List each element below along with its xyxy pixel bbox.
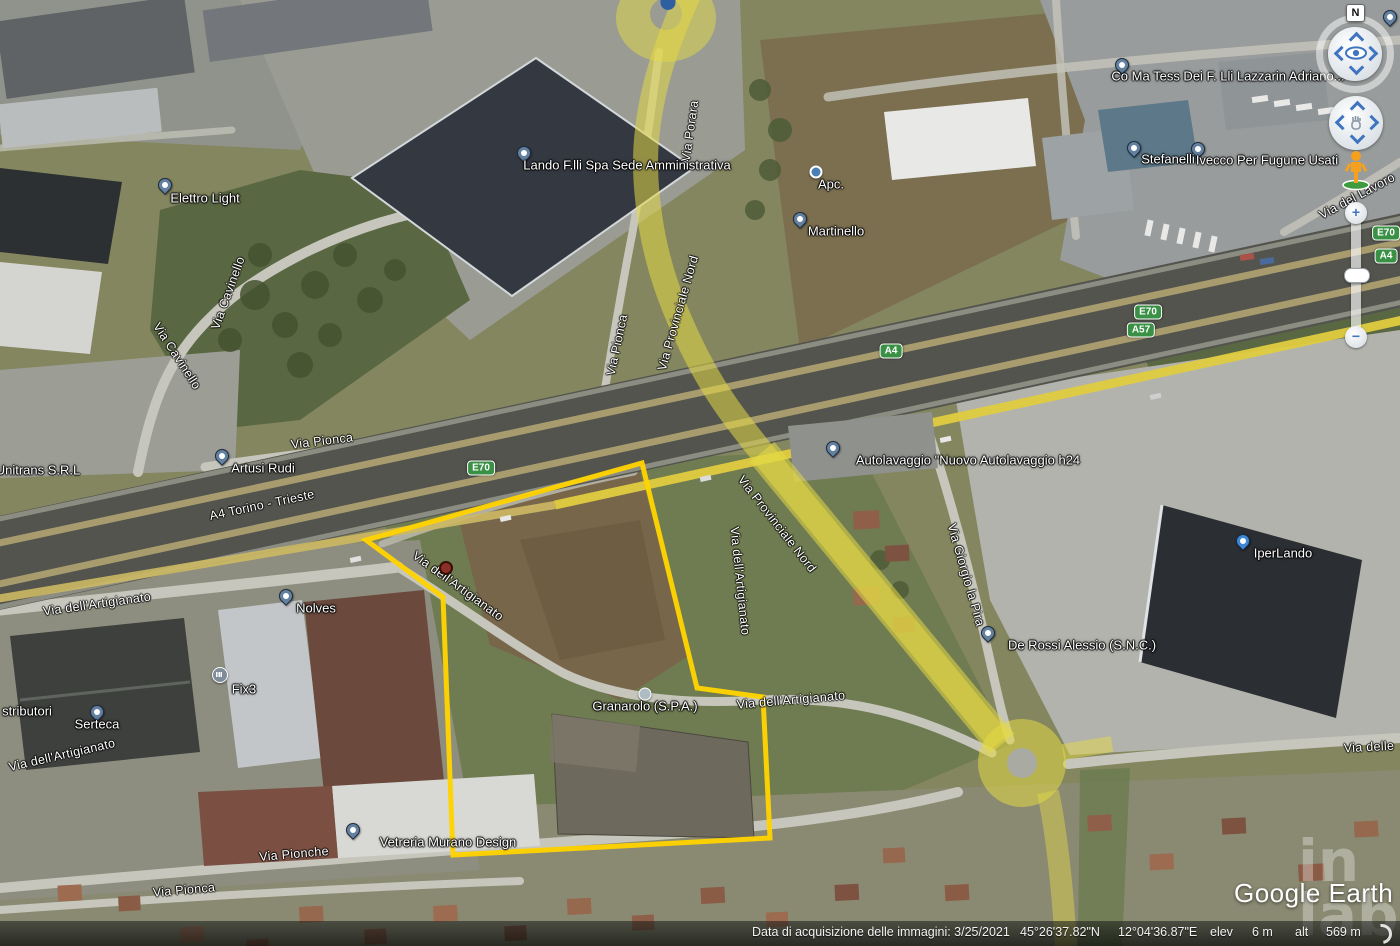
place-label[interactable]: De Rossi Alessio (S.N.C.)	[1008, 638, 1156, 653]
road-label: Via Provinciale Nord	[735, 473, 819, 575]
place-label[interactable]: Fix3	[232, 682, 257, 697]
half-pin-marker-icon[interactable]	[661, 0, 676, 10]
label-overlays: Elettro LightLando F.lli Spa Sede Ammini…	[0, 0, 1400, 946]
road-label: Via dell'Artigianato	[727, 526, 752, 636]
place-label[interactable]: Martinello	[808, 224, 864, 239]
zoom-in-button[interactable]: +	[1345, 202, 1367, 224]
place-label[interactable]: Lando F.lli Spa Sede Amministrativa	[523, 158, 730, 173]
road-label: Via dell'Artigianato	[42, 589, 152, 618]
pin-marker-icon[interactable]	[978, 623, 998, 643]
zoom-slider-handle[interactable]	[1344, 268, 1370, 283]
road-label: Via Pionca	[152, 880, 216, 899]
look-eye-icon	[1343, 44, 1369, 62]
pin-marker-icon[interactable]	[212, 446, 232, 466]
road-label: A4 Torino - Trieste	[208, 487, 315, 523]
place-label[interactable]: Elettro Light	[170, 191, 239, 206]
road-label: Via Cavinello	[208, 255, 247, 332]
alt-value: 569 m	[1326, 925, 1361, 939]
road-label: Via dell'Artigianato	[410, 548, 506, 623]
pin-marker-icon[interactable]	[823, 438, 843, 458]
bank-marker-icon[interactable]	[212, 667, 228, 683]
road-label: Via Cavinello	[150, 320, 203, 392]
road-label: Via Giorgio la Pira	[945, 522, 988, 628]
streaming-spinner-icon	[1368, 920, 1396, 946]
route-shield: A57	[1127, 323, 1155, 338]
place-label[interactable]: Granarolo (S.P.A.)	[592, 699, 697, 714]
elev-label: elev	[1210, 925, 1233, 939]
pin-marker-icon[interactable]	[276, 586, 296, 606]
pin-marker-icon[interactable]	[343, 820, 363, 840]
road-label: Via Porara	[679, 99, 701, 162]
imagery-date: Data di acquisizione delle immagini: 3/2…	[752, 925, 1010, 939]
red-dot-marker-icon[interactable]	[439, 561, 453, 575]
place-label[interactable]: Nolves	[296, 601, 336, 616]
road-label: Via dell'Artigianato	[736, 688, 846, 711]
status-bar: Data di acquisizione delle immagini: 3/2…	[0, 921, 1400, 946]
route-shield: A4	[880, 344, 903, 359]
route-shield: E70	[1372, 226, 1400, 241]
cart-marker-icon[interactable]	[1233, 531, 1253, 551]
route-shield: E70	[467, 461, 495, 476]
place-label[interactable]: Stefanelli	[1141, 152, 1194, 167]
place-label[interactable]: stributori	[2, 704, 52, 719]
pegman-streetview-icon[interactable]	[1338, 148, 1374, 192]
place-label[interactable]: IperLando	[1254, 546, 1313, 561]
road-label: Via dell'Artigianato	[7, 736, 116, 774]
route-shield: A4	[1375, 249, 1398, 264]
road-label: Via Provinciale Nord	[655, 254, 701, 372]
place-label[interactable]: Co Ma Tess Dei F. Lli Lazzarin Adriano..…	[1111, 69, 1344, 84]
google-earth-window: Elettro LightLando F.lli Spa Sede Ammini…	[0, 0, 1400, 946]
zoom-out-button[interactable]: −	[1345, 326, 1367, 348]
compass-north-button[interactable]: N	[1346, 4, 1365, 22]
road-label: Via Pionca	[604, 313, 631, 377]
pan-hand-icon	[1347, 114, 1365, 132]
longitude-readout: 12°04'36.87"E	[1118, 925, 1197, 939]
place-label[interactable]: Unitrans S.R.L	[0, 463, 80, 478]
road-label: Via delle	[1343, 739, 1394, 756]
google-earth-logo: Google Earth	[1234, 878, 1393, 909]
place-label[interactable]: Serteca	[75, 717, 120, 732]
place-label[interactable]: Ivecco Per Fugune Usati	[1196, 153, 1338, 168]
alt-label: alt	[1295, 925, 1308, 939]
pin-marker-icon[interactable]	[1380, 7, 1400, 27]
place-label[interactable]: Autolavaggio "Nuovo Autolavaggio h24	[856, 453, 1080, 468]
place-label[interactable]: Vetreria Murano Design	[380, 835, 517, 850]
elev-value: 6 m	[1252, 925, 1273, 939]
latitude-readout: 45°26'37.82"N	[1020, 925, 1100, 939]
route-shield: E70	[1134, 305, 1162, 320]
road-label: Via Pionche	[259, 844, 330, 864]
place-label[interactable]: Apc.	[818, 177, 844, 192]
road-label: Via Pionca	[290, 430, 354, 452]
place-label[interactable]: Artusi Rudi	[231, 461, 295, 476]
